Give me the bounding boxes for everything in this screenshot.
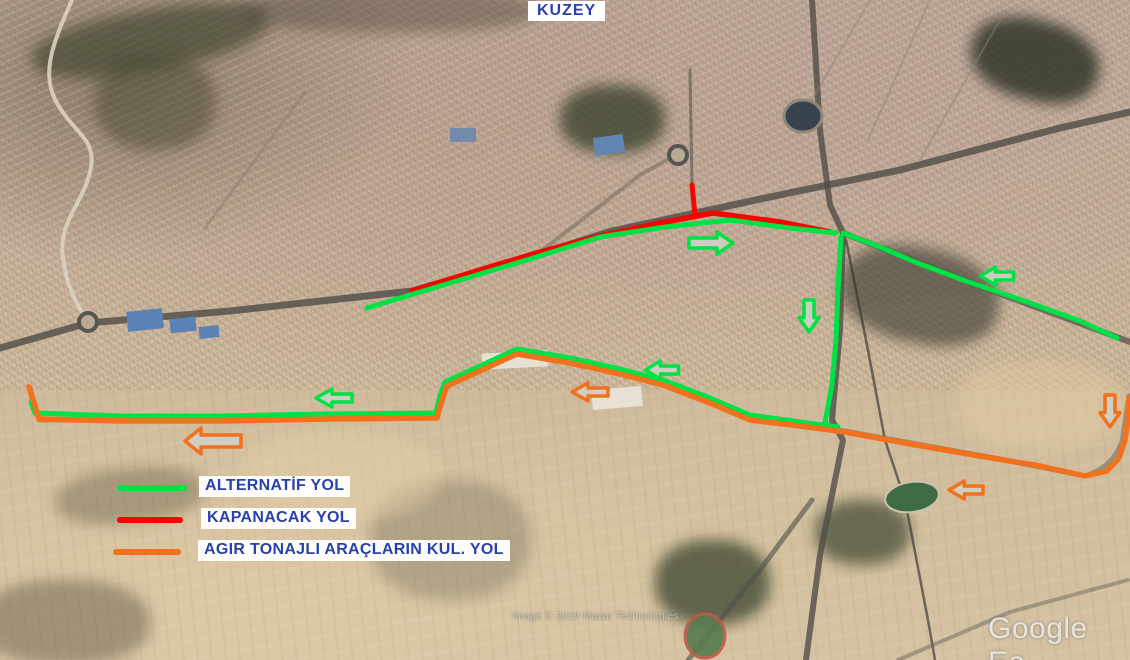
- legend-label-agir-tonaj: AGIR TONAJLI ARAÇLARIN KUL. YOL: [198, 540, 510, 561]
- direction-arrow-orange-down: [1100, 395, 1120, 427]
- direction-arrow-orange-left-w: [185, 428, 241, 454]
- legend-swatch-alternatif: [117, 485, 187, 491]
- legend-swatch-kapanacak: [117, 517, 183, 523]
- direction-arrow-green-left-w: [316, 389, 352, 407]
- route-annotations-layer: [0, 0, 1130, 660]
- direction-arrow-orange-left-se: [949, 481, 983, 499]
- route-kapanacak-branch: [692, 185, 695, 215]
- legend-label-alternatif: ALTERNATİF YOL: [199, 476, 350, 497]
- north-label-text: KUZEY: [537, 2, 596, 19]
- north-label: KUZEY: [528, 1, 605, 21]
- legend-label-kapanacak: KAPANACAK YOL: [201, 508, 356, 529]
- direction-arrow-green-left-ne: [981, 267, 1014, 285]
- map-screenshot: KUZEY ALTERNATİF YOL KAPANACAK YOL AGIR …: [0, 0, 1130, 660]
- direction-arrow-orange-left-mid: [572, 383, 608, 401]
- direction-arrow-green-down: [799, 300, 819, 332]
- route-alternatif-vertical: [825, 237, 841, 427]
- direction-arrow-green-right: [689, 232, 733, 254]
- google-earth-watermark: Google Ea: [988, 612, 1130, 660]
- route-alternatif-right: [843, 233, 1117, 338]
- legend-swatch-agir-tonaj: [113, 549, 181, 555]
- imagery-attribution: Image © 2019 Maxar Technologies: [512, 611, 679, 622]
